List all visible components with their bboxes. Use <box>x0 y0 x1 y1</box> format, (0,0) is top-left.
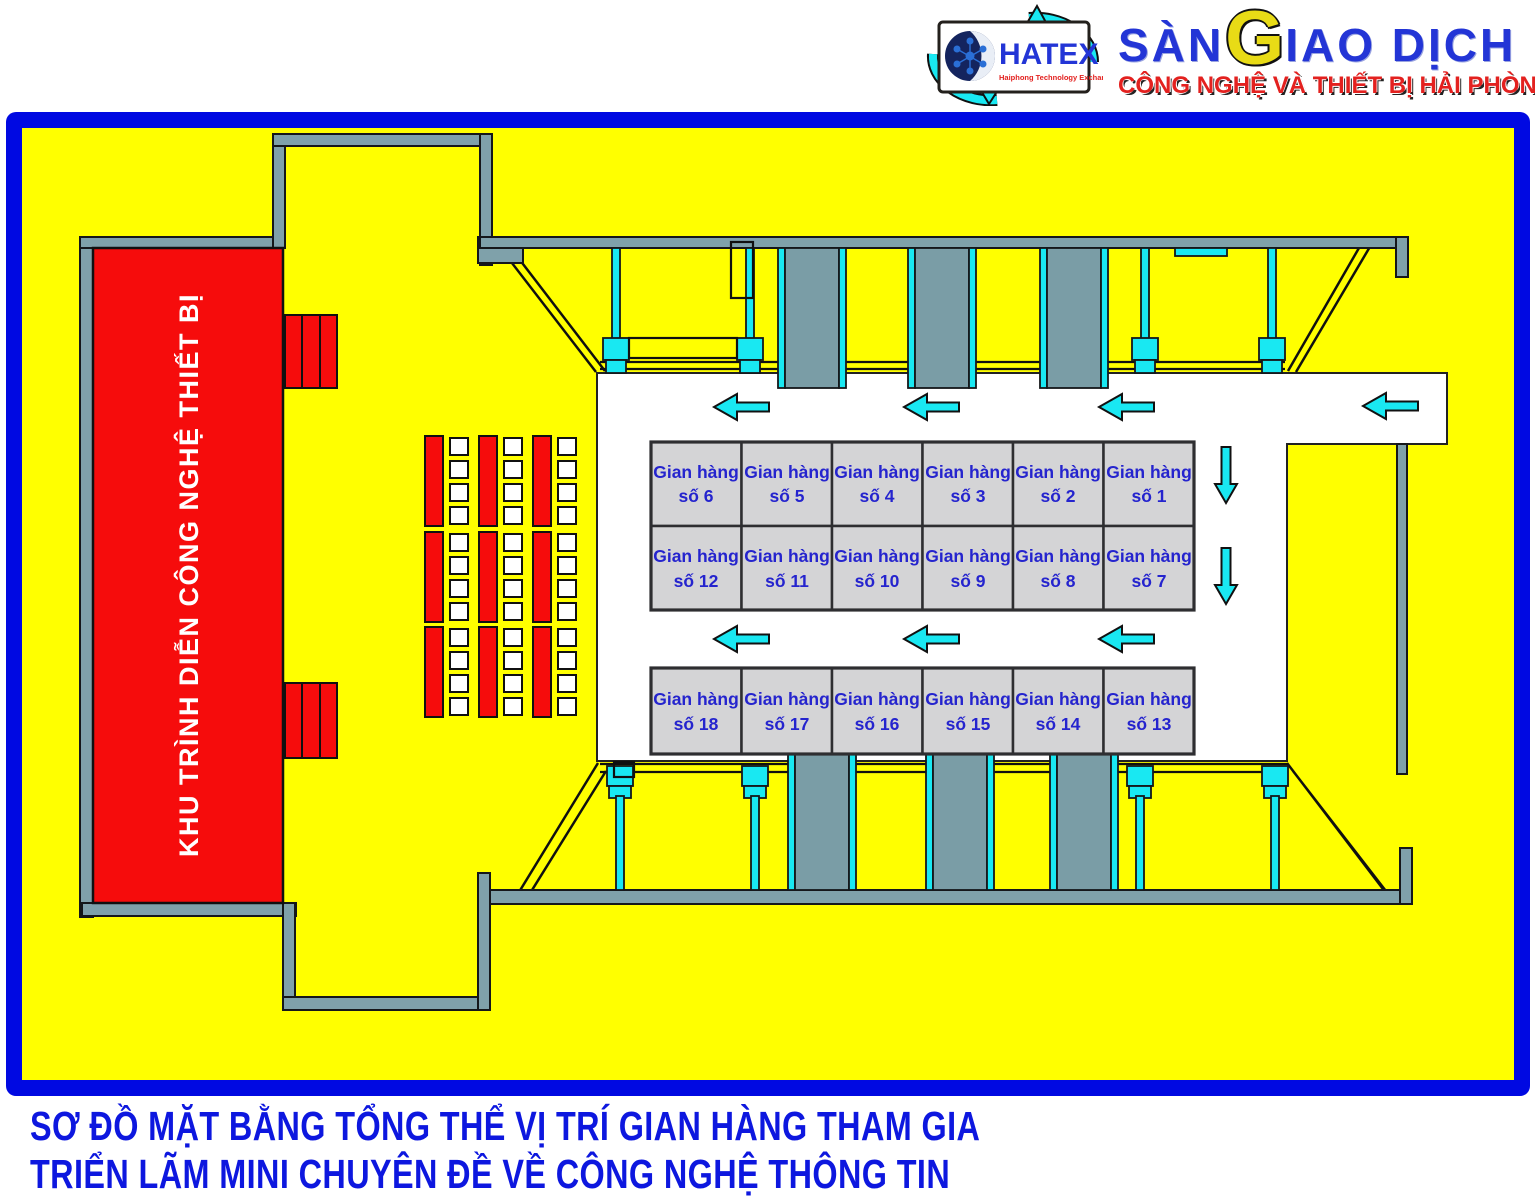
booth-so-6: Gian hàng số 6 <box>651 442 742 526</box>
stage-label: KHU TRÌNH DIỄN CÔNG NGHỆ THIẾT BỊ <box>173 293 204 857</box>
svg-text:Gian hàng: Gian hàng <box>1106 546 1192 566</box>
pillar-bottom-3 <box>1050 750 1118 890</box>
svg-text:Gian hàng: Gian hàng <box>1015 546 1101 566</box>
pillar-bottom-1 <box>788 750 856 890</box>
booth-so-4: Gian hàng số 4 <box>832 442 923 526</box>
svg-text:số 12: số 12 <box>674 571 719 591</box>
wall-under-stage <box>82 903 296 916</box>
svg-text:Gian hàng: Gian hàng <box>1106 462 1192 482</box>
svg-text:số 17: số 17 <box>765 714 810 734</box>
booth-so-14: Gian hàng số 14 <box>1013 668 1104 754</box>
svg-text:số 2: số 2 <box>1040 486 1075 506</box>
svg-text:Gian hàng: Gian hàng <box>1015 462 1101 482</box>
caption-line-2: TRIỂN LÃM MINI CHUYÊN ĐỀ VỀ CÔNG NGHỆ TH… <box>30 1150 980 1198</box>
svg-text:số 16: số 16 <box>855 714 900 734</box>
pillar-bottom-2 <box>926 750 994 890</box>
vestibule-wall-left <box>273 134 285 248</box>
svg-text:số 9: số 9 <box>950 571 985 591</box>
booth-so-10: Gian hàng số 10 <box>832 526 923 610</box>
svg-text:Gian hàng: Gian hàng <box>744 546 830 566</box>
booth-grid: Gian hàng số 6 Gian hàng số 5 Gian hàng … <box>651 442 1194 754</box>
wall-right-thin <box>1397 444 1407 774</box>
svg-text:Gian hàng: Gian hàng <box>834 689 920 709</box>
booth-so-11: Gian hàng số 11 <box>742 526 833 610</box>
wall-top-end <box>1396 237 1408 277</box>
caption: SƠ ĐỒ MẶT BẰNG TỔNG THỂ VỊ TRÍ GIAN HÀNG… <box>30 1102 1233 1198</box>
svg-text:số 15: số 15 <box>946 714 991 734</box>
booth-so-15: Gian hàng số 15 <box>923 668 1014 754</box>
booth-so-2: Gian hàng số 2 <box>1013 442 1104 526</box>
booth-so-7: Gian hàng số 7 <box>1104 526 1195 610</box>
svg-text:Gian hàng: Gian hàng <box>834 546 920 566</box>
svg-text:số 8: số 8 <box>1040 571 1075 591</box>
booth-so-16: Gian hàng số 16 <box>832 668 923 754</box>
svg-text:Gian hàng: Gian hàng <box>653 546 739 566</box>
booth-so-8: Gian hàng số 8 <box>1013 526 1104 610</box>
svg-text:Gian hàng: Gian hàng <box>744 462 830 482</box>
svg-text:số 14: số 14 <box>1036 714 1081 734</box>
pillar-top-3 <box>1040 248 1108 388</box>
door-strip <box>1175 248 1227 256</box>
svg-text:số 10: số 10 <box>855 571 900 591</box>
svg-text:số 3: số 3 <box>950 486 985 506</box>
svg-text:số 1: số 1 <box>1131 486 1166 506</box>
floor-plan: KHU TRÌNH DIỄN CÔNG NGHỆ THIẾT BỊ Gian h… <box>0 0 1535 1200</box>
svg-text:Gian hàng: Gian hàng <box>925 689 1011 709</box>
booth-so-13: Gian hàng số 13 <box>1104 668 1195 754</box>
wall-bottom-end <box>1400 848 1412 904</box>
svg-text:Gian hàng: Gian hàng <box>744 689 830 709</box>
bay-wall-left <box>283 903 295 1010</box>
page: HATEX Haiphong Technology Exchange SÀN G… <box>0 0 1535 1200</box>
svg-text:Gian hàng: Gian hàng <box>925 462 1011 482</box>
booth-so-17: Gian hàng số 17 <box>742 668 833 754</box>
caption-line-1: SƠ ĐỒ MẶT BẰNG TỔNG THỂ VỊ TRÍ GIAN HÀNG… <box>30 1102 980 1150</box>
svg-text:Gian hàng: Gian hàng <box>925 546 1011 566</box>
svg-text:số 5: số 5 <box>769 486 804 506</box>
svg-text:Gian hàng: Gian hàng <box>653 689 739 709</box>
svg-text:số 4: số 4 <box>859 486 894 506</box>
booth-so-1: Gian hàng số 1 <box>1104 442 1195 526</box>
svg-text:Gian hàng: Gian hàng <box>653 462 739 482</box>
svg-text:số 13: số 13 <box>1127 714 1172 734</box>
svg-text:số 18: số 18 <box>674 714 719 734</box>
booth-so-12: Gian hàng số 12 <box>651 526 742 610</box>
svg-text:số 11: số 11 <box>765 571 809 591</box>
stage-side-block-bottom <box>285 683 337 758</box>
bay-wall-bottom <box>283 997 490 1010</box>
stage-side-block-top <box>285 315 337 388</box>
pillar-top-2 <box>908 248 976 388</box>
booth-so-9: Gian hàng số 9 <box>923 526 1014 610</box>
vestibule-wall-top <box>273 134 492 146</box>
svg-text:số 6: số 6 <box>678 486 713 506</box>
wall-bottom-main <box>490 890 1412 904</box>
svg-text:số 7: số 7 <box>1131 571 1166 591</box>
wall-left <box>80 237 93 917</box>
pillar-top-1 <box>778 248 846 388</box>
wall-top-left <box>80 237 285 248</box>
svg-text:Gian hàng: Gian hàng <box>1106 689 1192 709</box>
booth-so-3: Gian hàng số 3 <box>923 442 1014 526</box>
bay-wall-right <box>478 873 490 1010</box>
svg-text:Gian hàng: Gian hàng <box>834 462 920 482</box>
svg-text:Gian hàng: Gian hàng <box>1015 689 1101 709</box>
booth-so-5: Gian hàng số 5 <box>742 442 833 526</box>
booth-so-18: Gian hàng số 18 <box>651 668 742 754</box>
wall-top-main <box>480 237 1408 248</box>
